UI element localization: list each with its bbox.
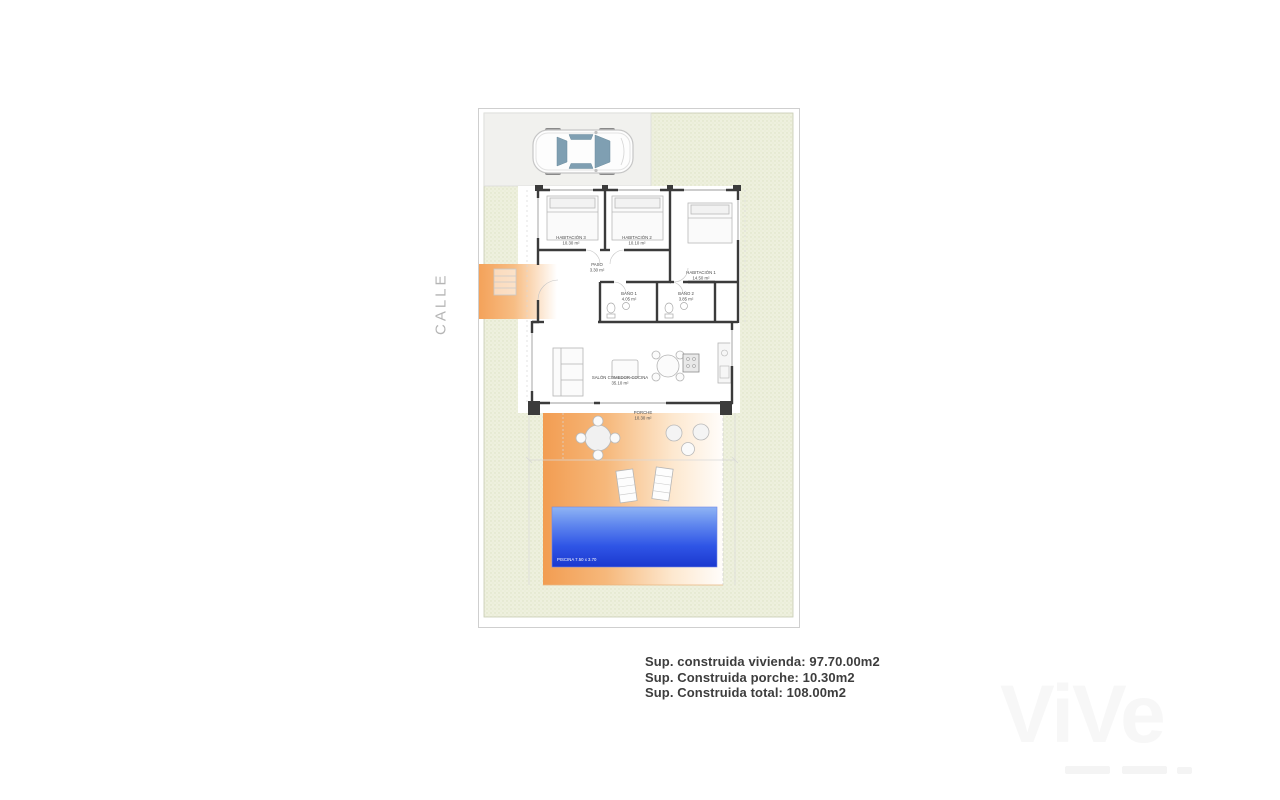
- bed: [547, 196, 598, 240]
- watermark-subtext: [1177, 767, 1192, 774]
- bed: [688, 203, 732, 243]
- watermark-logo: ViVe: [1000, 668, 1164, 762]
- watermark-subtext: [1122, 766, 1167, 774]
- room-area: 10.10 m²: [629, 241, 647, 246]
- area-summary: Sup. construida vivienda: 97.70.00m2 Sup…: [645, 654, 880, 701]
- room-label: HABITACIÓN 1: [686, 270, 716, 275]
- pool-label: PISCINA 7.50 x 3.70: [557, 557, 597, 562]
- dining-table: [652, 351, 684, 381]
- room-label: SALÓN COMEDOR-COCINA: [592, 375, 648, 380]
- summary-total: Sup. Construida total: 108.00m2: [645, 685, 880, 701]
- car-illustration: [533, 128, 633, 175]
- room-area: 35.10 m²: [612, 381, 630, 386]
- room-label: BAÑO 2: [678, 291, 694, 296]
- room-label: PORCHE: [634, 410, 653, 415]
- watermark-subtext: [1065, 766, 1110, 774]
- bed: [612, 196, 663, 240]
- summary-porche: Sup. Construida porche: 10.30m2: [645, 670, 880, 686]
- room-area: 3.30 m²: [590, 268, 605, 273]
- room-area: 10.30 m²: [635, 416, 653, 421]
- room-label: PASO: [591, 262, 603, 267]
- sofa: [553, 348, 583, 396]
- room-label: BAÑO 1: [621, 291, 637, 296]
- kitchen-island: [683, 354, 699, 372]
- street-label: CALLE: [426, 268, 456, 340]
- room-label: HABITACIÓN 3: [556, 235, 586, 240]
- site-plan: PISCINA 7.50 x 3.70: [478, 108, 800, 628]
- kitchen-counter: [718, 343, 731, 383]
- site-plan-page: CALLE: [0, 0, 1280, 800]
- room-area: 4.05 m²: [622, 297, 637, 302]
- summary-vivienda: Sup. construida vivienda: 97.70.00m2: [645, 654, 880, 670]
- entry-path: [479, 264, 557, 319]
- room-area: 3.85 m²: [679, 297, 694, 302]
- room-area: 14.50 m²: [693, 276, 711, 281]
- entry-steps: [494, 269, 516, 295]
- room-label: HABITACIÓN 2: [622, 235, 652, 240]
- room-area: 10.30 m²: [563, 241, 581, 246]
